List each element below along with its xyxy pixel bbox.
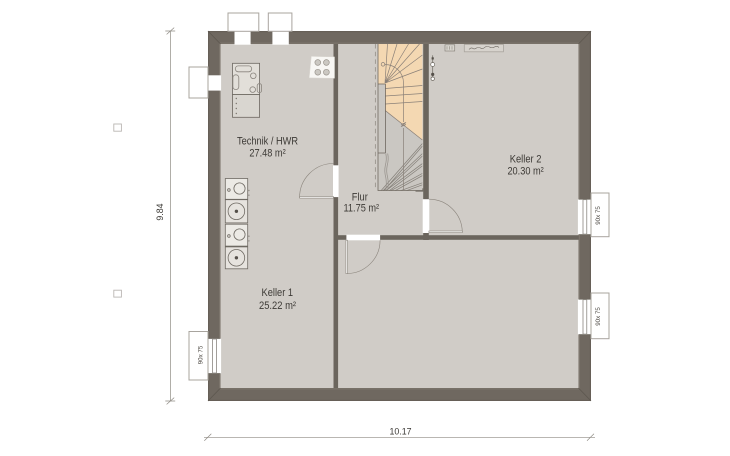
svg-text:25.22 m²: 25.22 m² <box>259 300 296 312</box>
svg-text:90x 75: 90x 75 <box>595 307 602 326</box>
svg-text:11.75 m²: 11.75 m² <box>344 203 380 215</box>
svg-text:20.30 m²: 20.30 m² <box>507 165 544 177</box>
svg-text:90x 75: 90x 75 <box>595 206 602 225</box>
svg-text:90x 75: 90x 75 <box>198 345 205 364</box>
svg-text:10.17: 10.17 <box>389 426 411 436</box>
svg-text:Keller 1: Keller 1 <box>262 287 294 299</box>
svg-text:27.48 m²: 27.48 m² <box>249 147 286 159</box>
svg-text:9.84: 9.84 <box>155 203 165 220</box>
svg-text:Technik / HWR: Technik / HWR <box>237 136 298 148</box>
svg-text:Keller 2: Keller 2 <box>510 154 542 166</box>
